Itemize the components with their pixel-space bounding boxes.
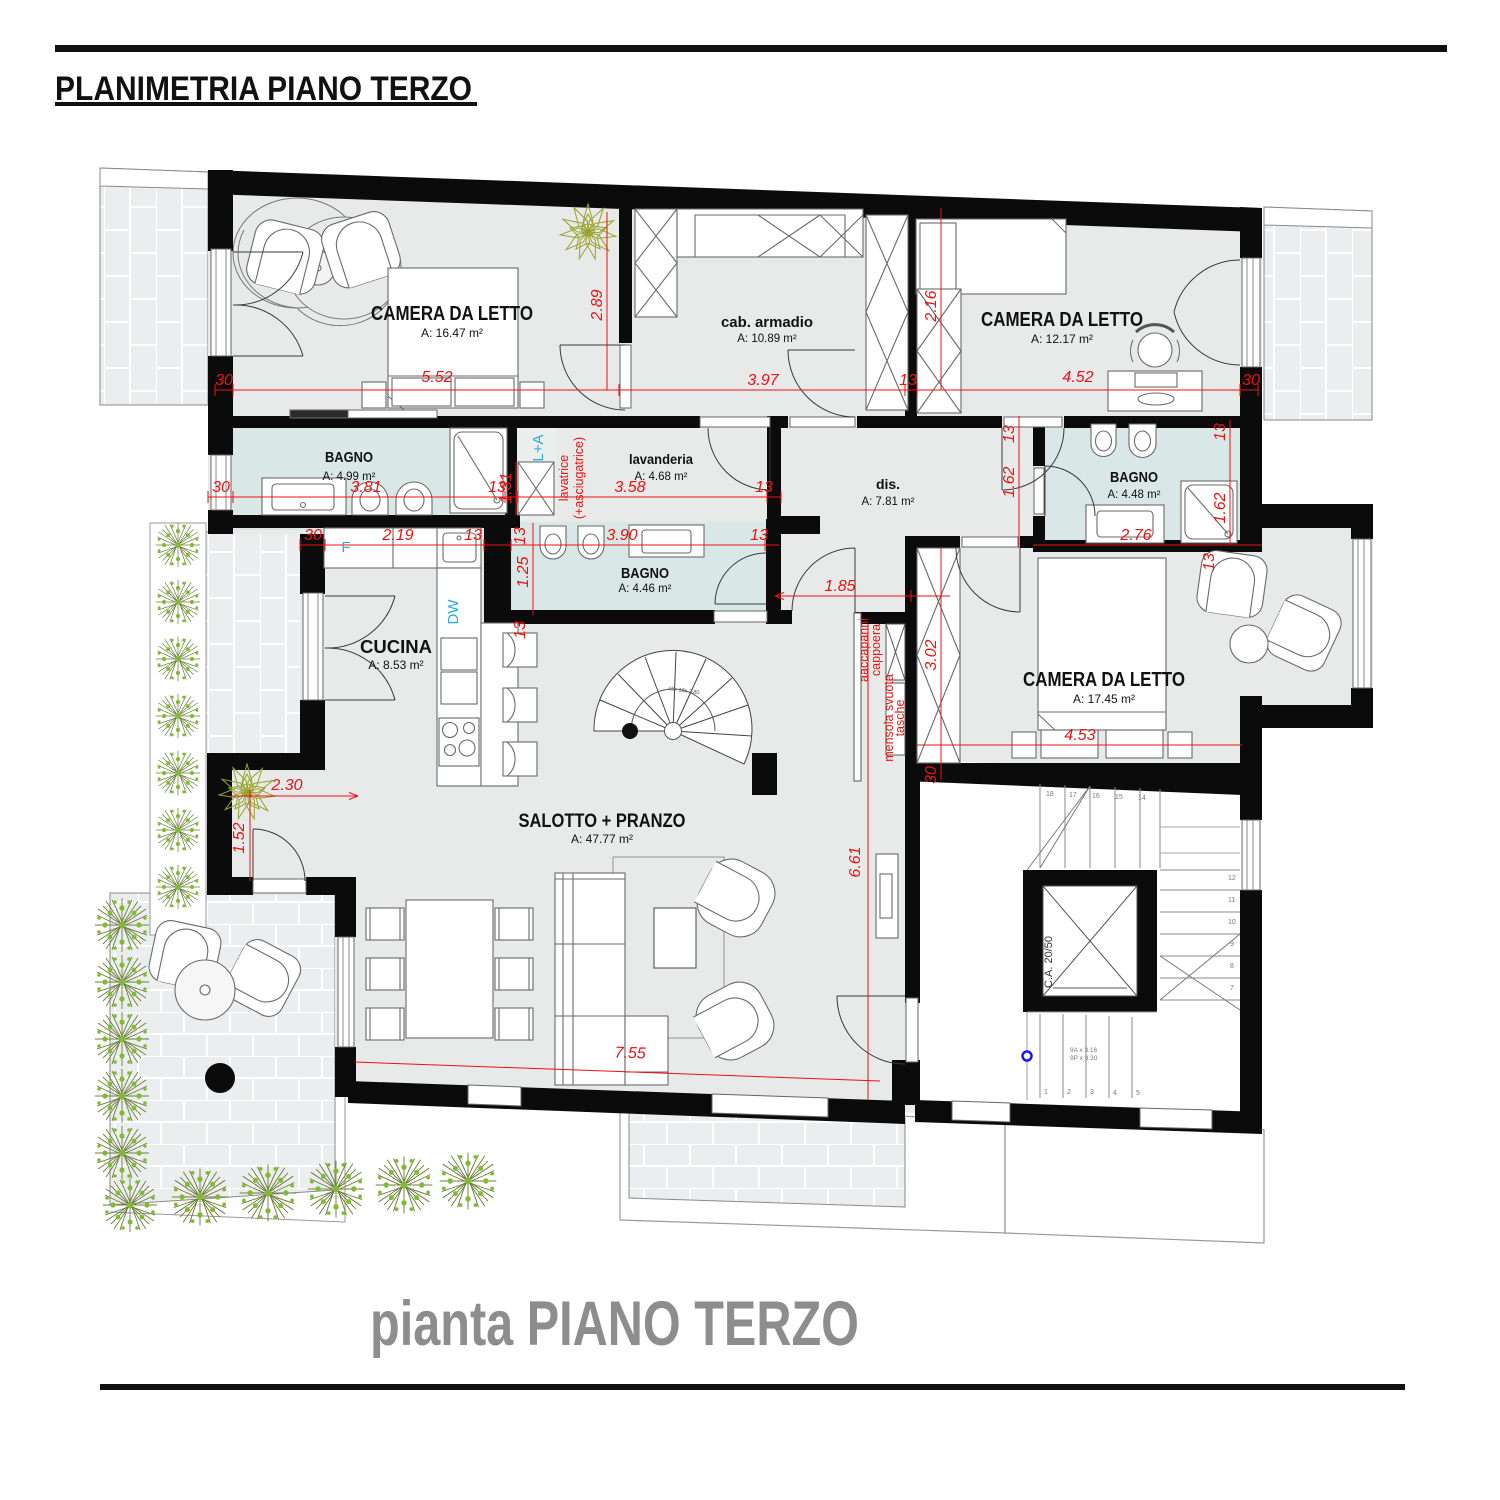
svg-text:A: 10.89 m²: A: 10.89 m² <box>737 333 797 345</box>
svg-text:A: 4.99 m²: A: 4.99 m² <box>322 471 375 483</box>
svg-text:CAMERA DA LETTO: CAMERA DA LETTO <box>371 303 533 325</box>
svg-text:cappoera: cappoera <box>869 624 883 676</box>
svg-text:16: 16 <box>1092 793 1100 800</box>
svg-text:30: 30 <box>923 766 940 784</box>
svg-text:A: 7.81 m²: A: 7.81 m² <box>861 496 914 508</box>
svg-text:13: 13 <box>755 479 773 496</box>
svg-text:13: 13 <box>1212 423 1229 441</box>
svg-text:5.52: 5.52 <box>421 369 452 386</box>
svg-text:1.62: 1.62 <box>1212 492 1229 523</box>
svg-text:7.55: 7.55 <box>614 1044 646 1062</box>
svg-text:30: 30 <box>304 527 322 544</box>
svg-text:6.61: 6.61 <box>847 846 864 877</box>
svg-text:tasche: tasche <box>893 700 907 737</box>
svg-text:17: 17 <box>1069 792 1077 799</box>
svg-text:1.25: 1.25 <box>515 556 532 587</box>
svg-text:4.52: 4.52 <box>1062 369 1093 386</box>
svg-text:1.31: 1.31 <box>498 472 515 503</box>
svg-text:12: 12 <box>1228 875 1236 882</box>
svg-text:C.A. 20/50: C.A. 20/50 <box>1043 936 1055 988</box>
svg-text:lavanderia: lavanderia <box>629 451 693 467</box>
svg-text:1.85: 1.85 <box>824 578 855 595</box>
svg-text:18: 18 <box>1046 791 1054 798</box>
svg-text:30: 30 <box>212 479 230 496</box>
svg-text:13: 13 <box>899 372 917 389</box>
svg-text:5: 5 <box>1136 1090 1140 1097</box>
svg-text:9A x 3.16: 9A x 3.16 <box>1070 1047 1097 1054</box>
svg-text:SALOTTO + PRANZO: SALOTTO + PRANZO <box>519 811 686 832</box>
svg-text:13: 13 <box>1201 553 1218 571</box>
svg-text:A: 4.46 m²: A: 4.46 m² <box>618 583 671 595</box>
svg-text:2: 2 <box>1067 1089 1071 1096</box>
svg-text:pianta PIANO TERZO: pianta PIANO TERZO <box>370 1289 859 1359</box>
svg-text:A: 8.53 m²: A: 8.53 m² <box>368 658 423 672</box>
svg-text:CAMERA DA LETTO: CAMERA DA LETTO <box>1023 669 1185 691</box>
svg-text:DW: DW <box>445 599 462 625</box>
svg-text:9P x 3.30: 9P x 3.30 <box>1070 1055 1098 1062</box>
svg-text:3.02: 3.02 <box>923 639 940 670</box>
svg-text:1.62: 1.62 <box>1001 466 1018 497</box>
svg-text:3.90: 3.90 <box>606 527 637 544</box>
svg-text:BAGNO: BAGNO <box>325 449 373 466</box>
svg-text:BAGNO: BAGNO <box>621 565 669 582</box>
svg-text:13: 13 <box>464 527 482 544</box>
svg-text:L+A: L+A <box>530 434 547 461</box>
svg-text:30: 30 <box>1242 372 1260 389</box>
svg-text:2.89: 2.89 <box>589 289 606 321</box>
svg-text:2.19: 2.19 <box>381 527 413 544</box>
svg-text:30: 30 <box>215 372 233 389</box>
svg-text:2.76: 2.76 <box>1119 527 1151 544</box>
svg-text:2.30: 2.30 <box>270 777 302 794</box>
svg-text:11: 11 <box>1228 897 1235 904</box>
svg-text:(+asciugatrice): (+asciugatrice) <box>572 437 586 519</box>
svg-text:4.53: 4.53 <box>1064 727 1095 744</box>
svg-text:1: 1 <box>1044 1089 1048 1096</box>
svg-text:A: 16.47 m²: A: 16.47 m² <box>421 326 483 340</box>
svg-text:A: 17.45 m²: A: 17.45 m² <box>1073 692 1135 706</box>
svg-text:3: 3 <box>1090 1089 1094 1096</box>
svg-text:dis.: dis. <box>876 476 900 492</box>
svg-text:CAMERA DA LETTO: CAMERA DA LETTO <box>981 309 1143 331</box>
svg-text:4: 4 <box>1113 1090 1117 1097</box>
svg-text:10: 10 <box>1228 919 1236 926</box>
svg-text:BAGNO: BAGNO <box>1110 469 1158 486</box>
svg-text:A: 4.48 m²: A: 4.48 m² <box>1107 489 1160 501</box>
svg-text:lavatrice: lavatrice <box>557 455 571 502</box>
svg-text:3.97: 3.97 <box>747 372 779 389</box>
svg-text:A: 12.17 m²: A: 12.17 m² <box>1031 332 1093 346</box>
svg-text:F: F <box>341 539 350 556</box>
svg-text:9: 9 <box>1230 941 1234 948</box>
svg-text:13: 13 <box>750 527 768 544</box>
svg-text:14: 14 <box>1138 795 1146 802</box>
svg-text:2.16: 2.16 <box>923 290 940 322</box>
svg-text:cab. armadio: cab. armadio <box>721 314 813 331</box>
svg-text:13: 13 <box>1001 425 1018 443</box>
svg-text:CUCINA: CUCINA <box>360 637 432 657</box>
svg-text:15: 15 <box>1115 794 1123 801</box>
svg-text:1.52: 1.52 <box>231 822 248 853</box>
svg-text:A: 4.68 m²: A: 4.68 m² <box>634 471 687 483</box>
svg-text:A: 47.77 m²: A: 47.77 m² <box>571 832 633 846</box>
svg-text:8: 8 <box>1230 963 1234 970</box>
svg-text:13: 13 <box>512 527 529 545</box>
svg-text:7: 7 <box>1230 985 1234 992</box>
svg-text:13: 13 <box>512 621 529 639</box>
